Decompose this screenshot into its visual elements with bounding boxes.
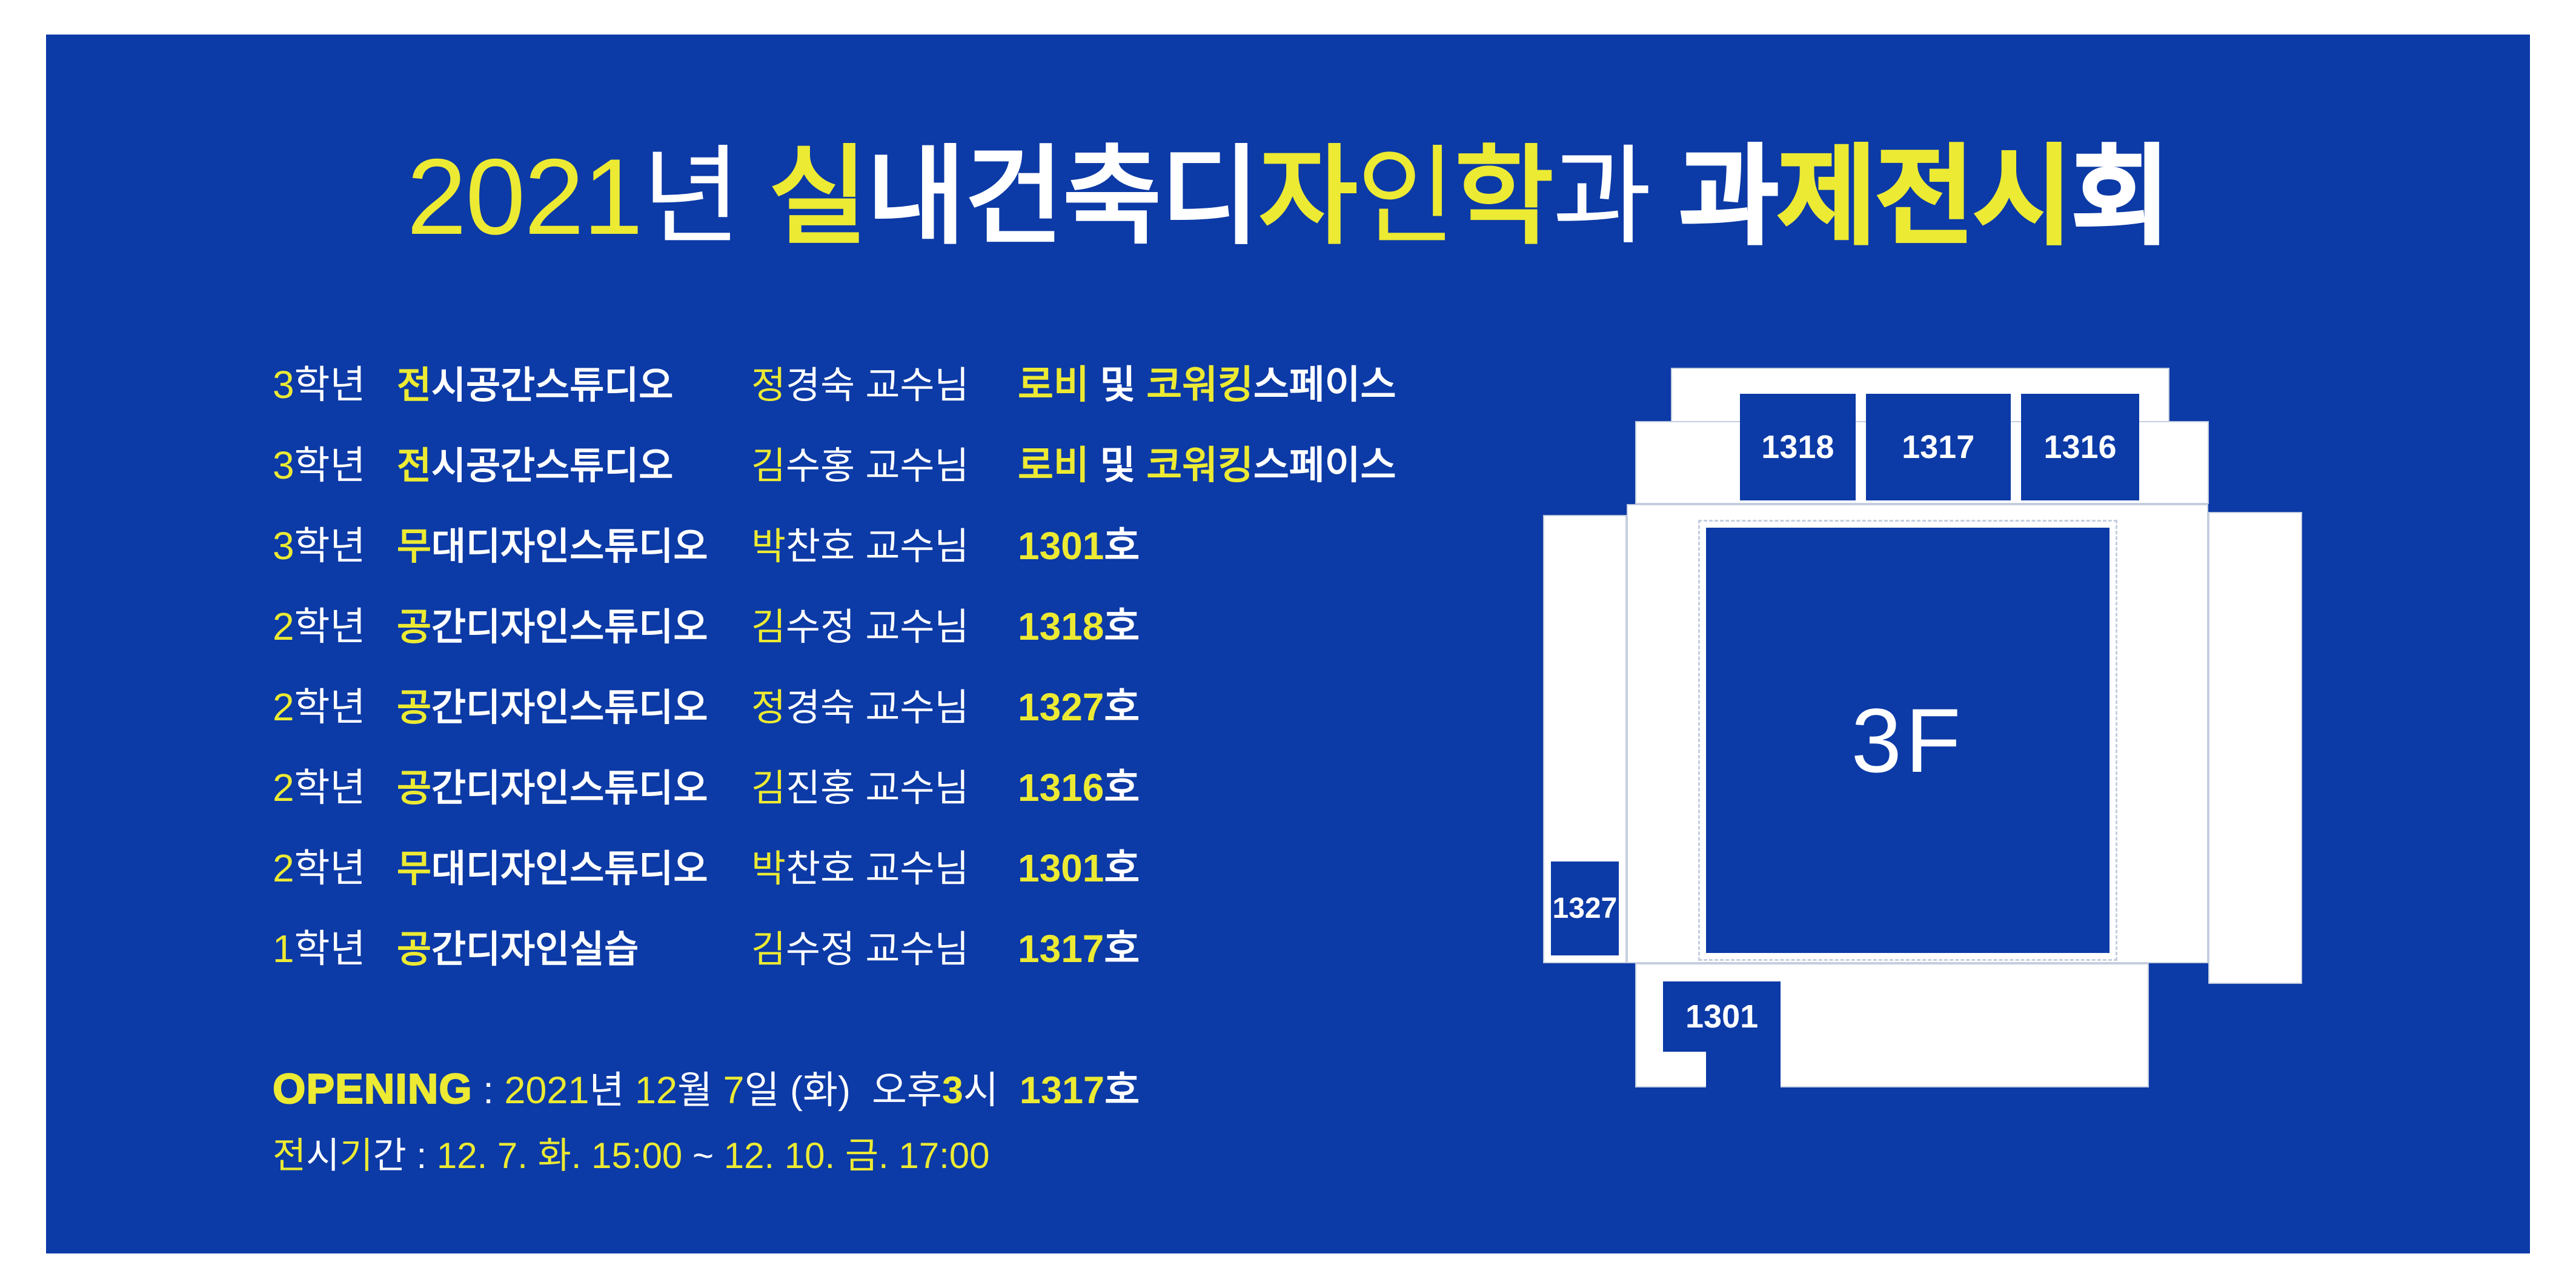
text-segment: ~ — [692, 1135, 714, 1176]
text-segment: 시공간스튜디오 — [431, 365, 673, 407]
studio-label: 공간디자인스튜디오 — [397, 596, 751, 651]
poster-background: 2021년 실내건축디자인학과 과제전시회 3학년 전시공간스튜디오 정경숙 교… — [46, 35, 2530, 1253]
text-segment: 3 — [942, 1069, 963, 1112]
text-segment: 학년 — [294, 524, 366, 568]
text-segment: 3 — [273, 524, 294, 568]
grade-label: 2학년 — [273, 757, 397, 812]
text-segment: 건 — [964, 136, 1063, 257]
text-segment: 찬호 교수님 — [786, 848, 969, 890]
opening-info: OPENING : 2021년 12월 7일 (화) 오후3시 1317호 — [273, 1060, 1140, 1115]
professor-label: 박찬호 교수님 — [751, 838, 1018, 892]
text-segment: 2 — [273, 685, 294, 729]
text-segment: 내 — [866, 136, 964, 257]
text-segment: 2 — [273, 846, 294, 890]
schedule-row: 3학년 무대디자인스튜디오 박찬호 교수님 1301호 — [273, 502, 1515, 583]
text-segment: 간디자인스튜디오 — [431, 606, 708, 648]
poster-title: 2021년 실내건축디자인학과 과제전시회 — [46, 141, 2530, 254]
text-segment: : — [473, 1069, 505, 1112]
text-segment: 3 — [273, 443, 294, 487]
location-label: 로비 및 코워킹스페이스 — [1018, 434, 1515, 490]
grade-label: 2학년 — [273, 837, 397, 893]
text-segment: 1317 — [1018, 927, 1104, 971]
text-segment: 정 — [751, 687, 786, 729]
text-segment: 호 — [1104, 524, 1140, 568]
text-segment: 년 — [589, 1069, 635, 1112]
text-segment: 찬호 교수님 — [786, 526, 969, 568]
text-segment: 간디자인실습 — [431, 929, 639, 971]
text-segment: 로비 — [1018, 443, 1089, 487]
studio-label: 공간디자인스튜디오 — [397, 677, 751, 731]
floor-label: 3F — [1851, 688, 1965, 793]
text-segment: 시 — [963, 1069, 1020, 1112]
text-segment: 코워킹 — [1146, 363, 1253, 407]
text-segment: 년 — [642, 136, 740, 257]
text-segment: 호 — [1104, 685, 1140, 729]
text-segment: 디 — [1161, 136, 1259, 257]
schedule-row: 2학년 공간디자인스튜디오 김수정 교수님 1318호 — [273, 583, 1515, 663]
text-segment: 대디자인스튜디오 — [431, 848, 708, 890]
schedule-row: 3학년 전시공간스튜디오 김수홍 교수님 로비 및 코워킹스페이스 — [273, 422, 1515, 502]
text-segment: 학년 — [294, 846, 366, 890]
text-segment: 1327 — [1018, 685, 1104, 729]
text-segment: 공 — [397, 606, 431, 648]
text-segment — [1650, 136, 1679, 257]
schedule-list: 3학년 전시공간스튜디오 정경숙 교수님 로비 및 코워킹스페이스 3학년 전시… — [273, 341, 1515, 986]
room-1317: 1317 — [1866, 394, 2011, 500]
text-segment: 기 — [339, 1135, 373, 1176]
text-segment: 박 — [751, 848, 786, 890]
text-segment: 간디자인스튜디오 — [431, 768, 708, 809]
room-1301-extension — [1706, 1050, 1781, 1089]
text-segment: 무 — [397, 848, 431, 890]
text-segment: 1301 — [1018, 524, 1104, 568]
professor-label: 김수홍 교수님 — [751, 435, 1018, 490]
schedule-row: 2학년 공간디자인스튜디오 김진홍 교수님 1316호 — [273, 744, 1515, 825]
text-segment: 전 — [397, 365, 431, 407]
text-segment: 호 — [1104, 927, 1140, 971]
text-segment: 및 — [1089, 443, 1146, 487]
text-segment: 전 — [1875, 136, 1973, 257]
text-segment: 2021 — [407, 136, 642, 257]
text-segment — [740, 136, 768, 257]
text-segment: 학년 — [294, 443, 366, 487]
text-segment: 공 — [397, 768, 431, 809]
text-segment: 학년 — [294, 766, 366, 809]
studio-label: 무대디자인스튜디오 — [397, 516, 751, 570]
text-segment: 오후 — [851, 1069, 942, 1112]
text-segment: 시공간스튜디오 — [431, 445, 673, 487]
text-segment: 1318 — [1018, 605, 1104, 648]
text-segment: 1317 — [1020, 1069, 1104, 1112]
floorplan: 3F 1318 1317 1316 1327 1301 — [1543, 368, 2302, 1089]
grade-label: 2학년 — [273, 596, 397, 651]
location-label: 1301호 — [1018, 515, 1515, 571]
room-1318: 1318 — [1740, 394, 1856, 500]
studio-label: 전시공간스튜디오 — [397, 435, 751, 490]
text-segment: 공 — [397, 687, 431, 729]
room-1327: 1327 — [1551, 861, 1619, 955]
text-segment: 호 — [1104, 766, 1140, 809]
professor-label: 박찬호 교수님 — [751, 516, 1018, 570]
text-segment: 김 — [751, 606, 786, 648]
text-segment: 7 — [723, 1069, 745, 1112]
schedule-row: 2학년 무대디자인스튜디오 박찬호 교수님 1301호 — [273, 825, 1515, 905]
text-segment: 12. 10. 금. 17:00 — [714, 1135, 990, 1176]
grade-label: 3학년 — [273, 515, 397, 571]
text-segment: 학 — [1455, 136, 1553, 257]
professor-label: 김수정 교수님 — [751, 918, 1018, 973]
text-segment: 자 — [1258, 136, 1356, 257]
grade-label: 3학년 — [273, 434, 397, 490]
location-label: 로비 및 코워킹스페이스 — [1018, 354, 1515, 410]
text-segment: 호 — [1104, 605, 1140, 648]
text-segment: 경숙 교수님 — [786, 365, 969, 407]
schedule-row: 2학년 공간디자인스튜디오 정경숙 교수님 1327호 — [273, 663, 1515, 744]
grade-label: 1학년 — [273, 918, 397, 974]
studio-label: 공간디자인실습 — [397, 918, 751, 973]
studio-label: 무대디자인스튜디오 — [397, 838, 751, 892]
text-segment: 간 — [373, 1135, 407, 1176]
text-segment: 축 — [1063, 136, 1161, 257]
professor-label: 정경숙 교수님 — [751, 354, 1018, 409]
text-segment: 대디자인스튜디오 — [431, 526, 708, 568]
text-segment: 코워킹 — [1146, 443, 1253, 487]
schedule-row: 3학년 전시공간스튜디오 정경숙 교수님 로비 및 코워킹스페이스 — [273, 341, 1515, 422]
text-segment: 수정 교수님 — [786, 929, 969, 971]
text-segment: 수정 교수님 — [786, 606, 969, 648]
text-segment: 회 — [2071, 136, 2169, 257]
text-segment: 과 — [1679, 136, 1778, 257]
location-label: 1316호 — [1018, 757, 1515, 812]
text-segment: OPENING — [273, 1065, 473, 1112]
text-segment: 2021 — [504, 1069, 589, 1112]
text-segment: 월 — [677, 1069, 723, 1112]
text-segment: 공 — [397, 929, 431, 971]
exhibition-period: 전시기간 : 12. 7. 화. 15:00 ~ 12. 10. 금. 17:0… — [273, 1126, 990, 1179]
text-segment: 전 — [273, 1135, 306, 1176]
text-segment: 수홍 교수님 — [786, 445, 969, 487]
text-segment: 인 — [1356, 136, 1455, 257]
text-segment: 로비 — [1018, 363, 1089, 407]
text-segment: 경숙 교수님 — [786, 687, 969, 729]
professor-label: 김진홍 교수님 — [751, 757, 1018, 812]
text-segment: 일 (화) — [745, 1069, 851, 1112]
text-segment: 2 — [273, 605, 294, 648]
text-segment: 김 — [751, 768, 786, 809]
text-segment: 김 — [751, 929, 786, 971]
text-segment: 1301 — [1018, 846, 1104, 890]
text-segment: 3 — [273, 363, 294, 407]
text-segment: 무 — [397, 526, 431, 568]
text-segment: 학년 — [294, 685, 366, 729]
text-segment: : — [407, 1135, 437, 1176]
floorplan-central-hall: 3F — [1706, 528, 2109, 953]
text-segment: 실 — [769, 136, 867, 257]
text-segment: 호 — [1104, 1069, 1140, 1112]
text-segment: 2 — [273, 766, 294, 809]
text-segment: 시 — [306, 1135, 339, 1176]
grade-label: 2학년 — [273, 676, 397, 732]
location-label: 1318호 — [1018, 596, 1515, 651]
text-segment: 박 — [751, 526, 786, 568]
grade-label: 3학년 — [273, 354, 397, 410]
text-segment: 12 — [635, 1069, 677, 1112]
text-segment: 및 — [1089, 363, 1146, 407]
schedule-row: 1학년 공간디자인실습 김수정 교수님 1317호 — [273, 905, 1515, 986]
text-segment: 학년 — [294, 927, 366, 971]
text-segment: 제 — [1778, 136, 1876, 257]
professor-label: 김수정 교수님 — [751, 596, 1018, 651]
text-segment: 정 — [751, 365, 786, 407]
floorplan-right-wing — [2208, 512, 2302, 984]
location-label: 1327호 — [1018, 676, 1515, 732]
text-segment: 진홍 교수님 — [786, 768, 969, 809]
text-segment: 학년 — [294, 363, 366, 407]
text-segment: 시 — [1973, 136, 2071, 257]
text-segment: 과 — [1553, 136, 1651, 257]
studio-label: 공간디자인스튜디오 — [397, 757, 751, 812]
text-segment: 스페이스 — [1253, 443, 1396, 487]
room-1301: 1301 — [1663, 981, 1781, 1052]
text-segment: 1 — [273, 927, 294, 971]
text-segment: 호 — [1104, 846, 1140, 890]
text-segment: 12. 7. 화. 15:00 — [437, 1135, 692, 1176]
text-segment: 간디자인스튜디오 — [431, 687, 708, 729]
location-label: 1317호 — [1018, 918, 1515, 974]
professor-label: 정경숙 교수님 — [751, 677, 1018, 731]
room-1316: 1316 — [2021, 394, 2139, 500]
text-segment: 1316 — [1018, 766, 1104, 809]
text-segment: 스페이스 — [1253, 363, 1396, 407]
location-label: 1301호 — [1018, 837, 1515, 893]
text-segment: 전 — [397, 445, 431, 487]
studio-label: 전시공간스튜디오 — [397, 354, 751, 409]
text-segment: 학년 — [294, 605, 366, 648]
text-segment: 김 — [751, 445, 786, 487]
